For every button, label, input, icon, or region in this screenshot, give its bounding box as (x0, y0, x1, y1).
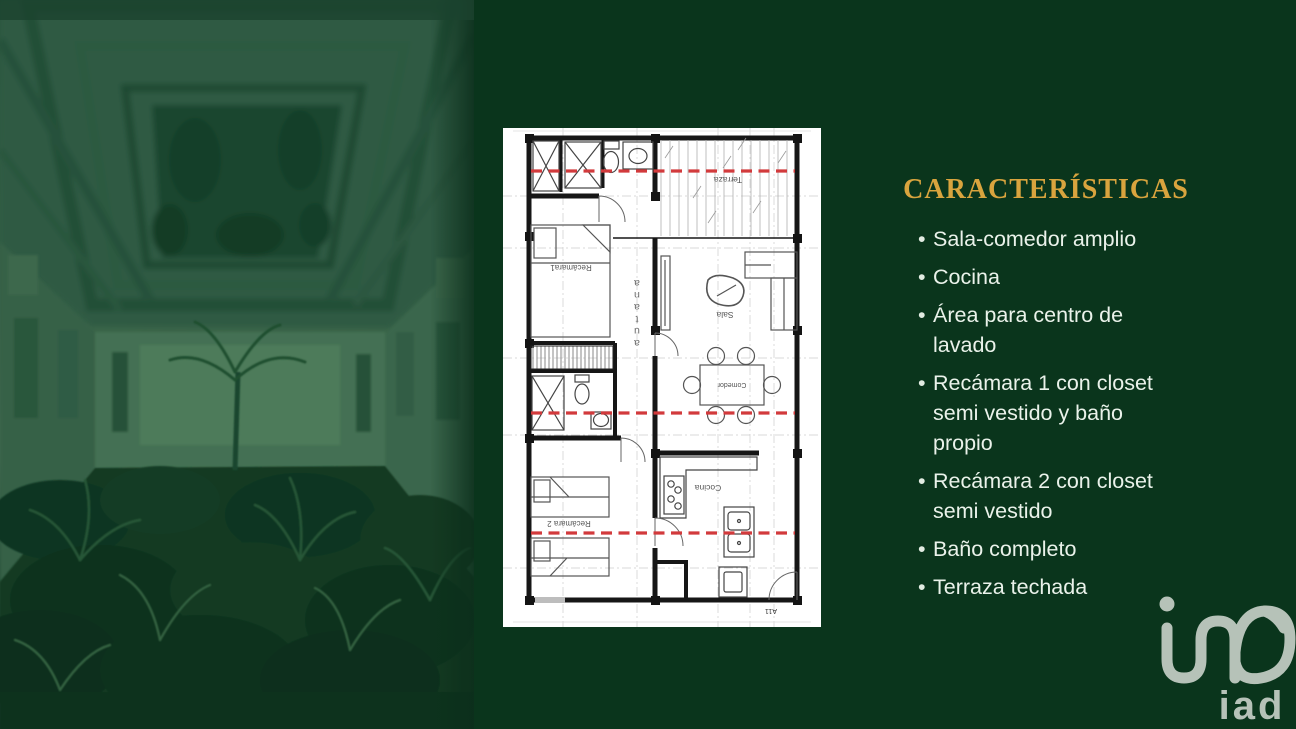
watermark-letter: n (634, 289, 640, 301)
watermark-letter: u (634, 325, 640, 337)
room-label-sala: Sala (716, 310, 733, 320)
iad-monogram-icon: iad (1146, 588, 1296, 729)
bullet-icon: • (905, 572, 933, 602)
watermark-letter: a (634, 337, 640, 349)
bullet-icon: • (905, 262, 933, 292)
iad-logo-text: iad (1219, 684, 1286, 728)
bullet-icon: • (905, 466, 933, 496)
feature-item: • Sala-comedor amplio (905, 224, 1187, 254)
feature-list: • Sala-comedor amplio • Cocina • Área pa… (905, 224, 1187, 610)
presentation-slide: Terraza Sala Comedor Cocina Recámara1 Re… (0, 0, 1296, 729)
feature-item: • Recámara 2 con closet semi vestido (905, 466, 1187, 526)
feature-text: Baño completo (933, 534, 1173, 564)
room-label-terraza: Terraza (714, 175, 743, 185)
bullet-icon: • (905, 534, 933, 564)
watermark-letter: t (635, 313, 638, 325)
floor-plan-image: Terraza Sala Comedor Cocina Recámara1 Re… (503, 128, 821, 627)
autana-watermark: a u t a n a (634, 277, 640, 349)
feature-text: Terraza techada (933, 572, 1173, 602)
watermark-letter: a (634, 301, 640, 313)
atrium-photo-art (0, 0, 474, 729)
iad-logo: iad (1146, 588, 1296, 729)
feature-text: Cocina (933, 262, 1173, 292)
bullet-icon: • (905, 224, 933, 254)
feature-text: Sala-comedor amplio (933, 224, 1173, 254)
bullet-icon: • (905, 300, 933, 330)
feature-text: Recámara 2 con closet semi vestido (933, 466, 1173, 526)
feature-item: • Recámara 1 con closet semi vestido y b… (905, 368, 1187, 458)
feature-text: Recámara 1 con closet semi vestido y bañ… (933, 368, 1173, 458)
characteristics-title: CARACTERÍSTICAS (898, 174, 1194, 206)
closet-recamara1 (531, 346, 613, 369)
watermark-letter: a (634, 277, 640, 289)
feature-item: • Terraza techada (905, 572, 1187, 602)
room-label-recamara1: Recámara1 (550, 263, 592, 272)
room-label-comedor: Comedor (717, 381, 746, 388)
atrium-photo (0, 0, 474, 729)
sheet-code-label: A11 (765, 607, 777, 614)
room-label-recamara2: Recámara 2 (547, 519, 591, 528)
feature-item: • Área para centro de lavado (905, 300, 1187, 360)
feature-text: Área para centro de lavado (933, 300, 1173, 360)
feature-item: • Baño completo (905, 534, 1187, 564)
feature-item: • Cocina (905, 262, 1187, 292)
room-label-cocina: Cocina (695, 483, 722, 493)
window-strip (535, 597, 565, 603)
bullet-icon: • (905, 368, 933, 398)
floor-plan-drawing: Terraza Sala Comedor Cocina Recámara1 Re… (503, 128, 821, 627)
photo-green-tint (0, 0, 474, 729)
